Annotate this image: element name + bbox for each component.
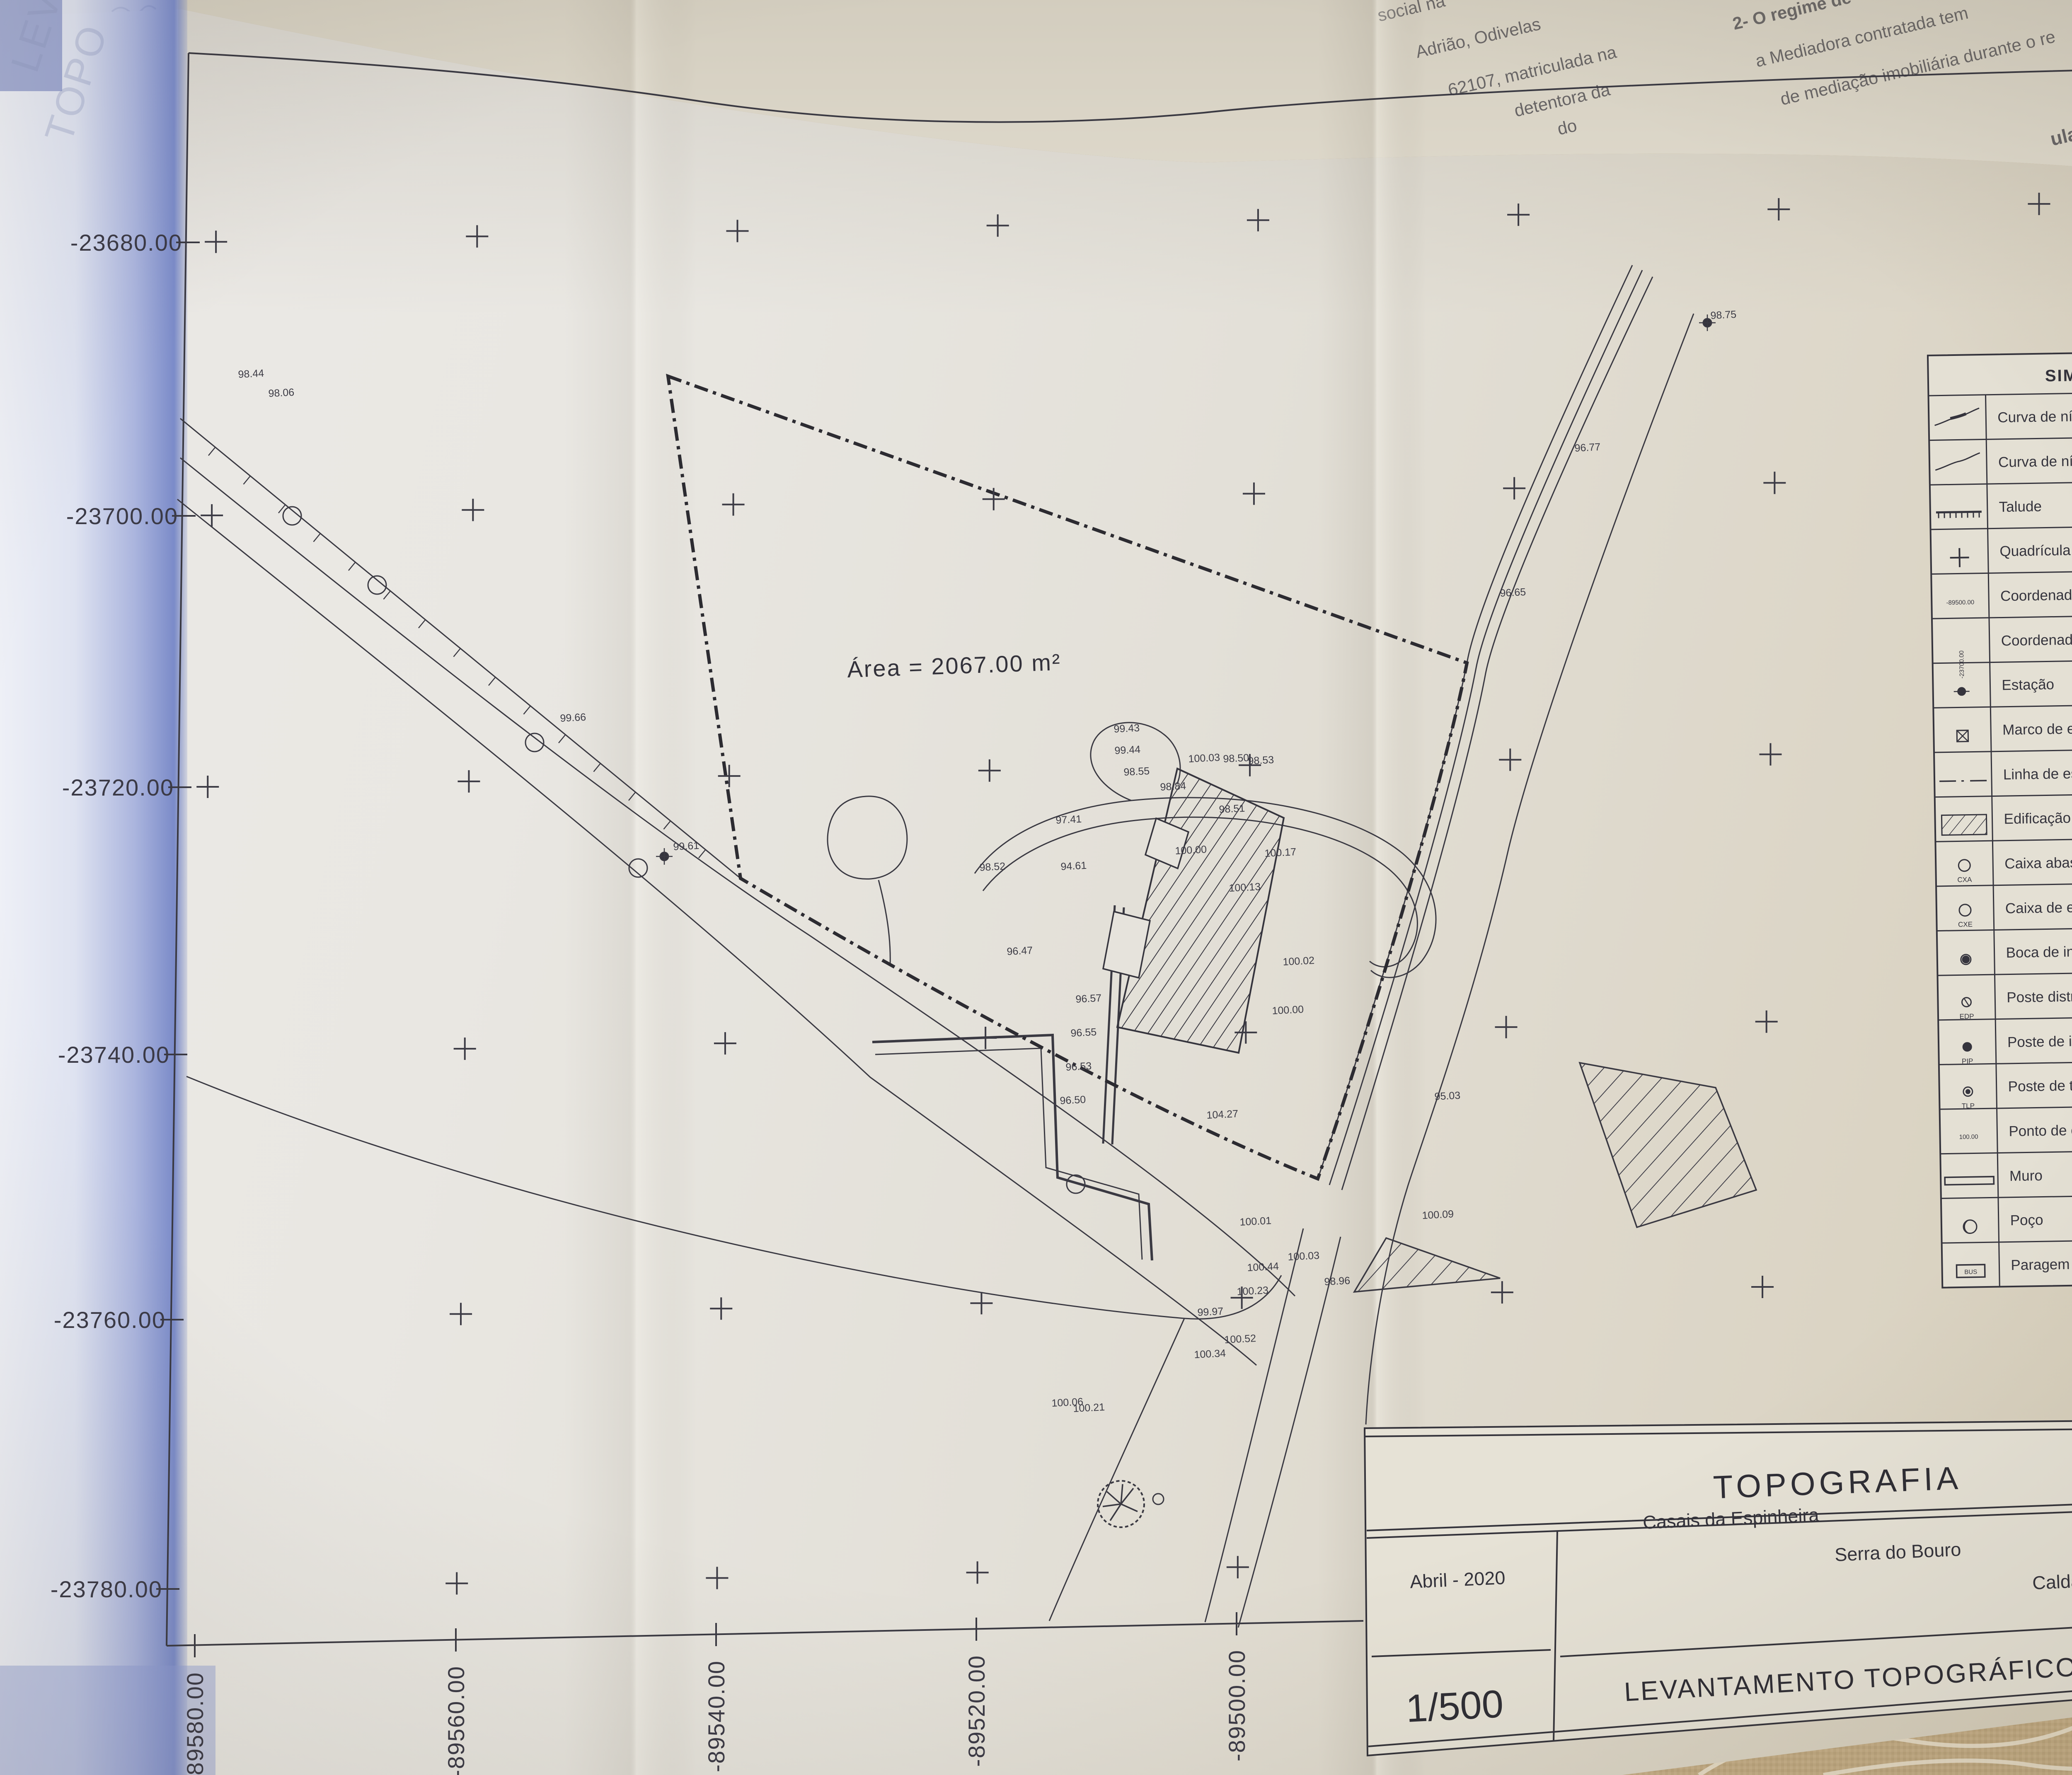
photo-vignette bbox=[0, 0, 2072, 1775]
photographed-topographic-plan: social na Adrião, Odivelas 62107, matric… bbox=[0, 0, 2072, 1775]
